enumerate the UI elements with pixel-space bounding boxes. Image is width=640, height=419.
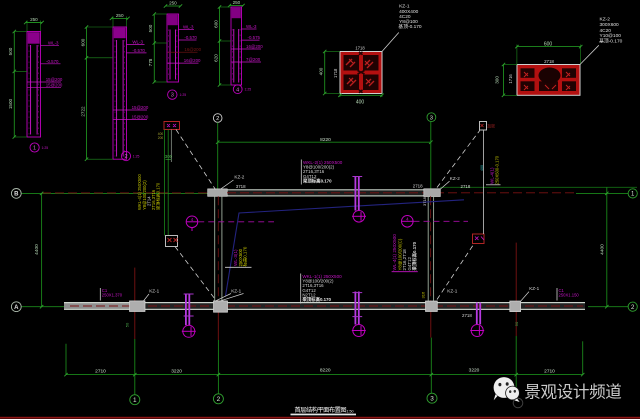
- svg-text:3: 3: [430, 115, 433, 121]
- svg-text:梁顶标高0.170: 梁顶标高0.170: [302, 178, 332, 185]
- svg-text:加密: 加密: [487, 124, 495, 129]
- svg-text:1718: 1718: [355, 45, 365, 50]
- svg-text:500: 500: [8, 47, 13, 55]
- svg-text:-0.570: -0.570: [184, 35, 197, 40]
- svg-text:1:25: 1:25: [245, 88, 252, 92]
- svg-text:15@200: 15@200: [132, 105, 149, 110]
- svg-text:500: 500: [148, 24, 153, 32]
- svg-text:KZ-1: KZ-1: [399, 4, 410, 10]
- svg-text:250: 250: [30, 17, 38, 22]
- svg-text:600: 600: [80, 38, 85, 46]
- svg-text:15@200: 15@200: [46, 82, 63, 87]
- svg-text:50: 50: [514, 321, 519, 326]
- svg-text:KZ-2: KZ-2: [234, 175, 244, 180]
- svg-text:KZ-1: KZ-1: [529, 286, 539, 291]
- svg-text:16@200: 16@200: [184, 58, 201, 63]
- svg-text:8220: 8220: [320, 367, 331, 373]
- svg-text:400: 400: [356, 100, 365, 106]
- svg-text:16@200: 16@200: [246, 44, 263, 49]
- svg-text:WL-3: WL-3: [132, 40, 143, 45]
- svg-text:2718: 2718: [544, 59, 554, 64]
- svg-text:2: 2: [217, 396, 221, 403]
- svg-text:Y10@100: Y10@100: [600, 33, 622, 39]
- svg-text:2710: 2710: [544, 368, 555, 374]
- svg-text:400: 400: [480, 165, 484, 171]
- svg-text:1: 1: [33, 146, 36, 152]
- svg-text:3220: 3220: [171, 368, 182, 374]
- svg-text:1500: 1500: [8, 98, 13, 109]
- svg-text:600: 600: [544, 41, 553, 47]
- svg-text:-0.575: -0.575: [248, 35, 261, 40]
- svg-text:2718: 2718: [461, 184, 471, 189]
- svg-text:基顶-0.170: 基顶-0.170: [599, 37, 623, 44]
- svg-text:2: 2: [124, 154, 127, 160]
- svg-text:-0.570: -0.570: [132, 48, 145, 53]
- svg-text:WL-3: WL-3: [48, 40, 59, 45]
- svg-text:KZ-2: KZ-2: [450, 176, 460, 181]
- svg-text:1:25: 1:25: [133, 155, 140, 159]
- svg-text:1:25: 1:25: [180, 93, 187, 97]
- svg-text:1:25: 1:25: [42, 146, 49, 150]
- svg-text:2718: 2718: [413, 183, 423, 188]
- svg-text:4: 4: [236, 87, 239, 93]
- svg-text:400: 400: [319, 67, 324, 75]
- svg-text:首层结构平面布置图: 首层结构平面布置图: [295, 406, 347, 414]
- svg-text:梁顶标高0.170: 梁顶标高0.170: [411, 241, 418, 271]
- svg-text:景观设计频道: 景观设计频道: [524, 382, 621, 401]
- svg-text:250X1.370: 250X1.370: [102, 293, 123, 298]
- svg-text:15@200: 15@200: [132, 115, 149, 120]
- svg-text:1:50: 1:50: [347, 410, 354, 414]
- svg-text:B: B: [14, 192, 19, 198]
- svg-text:300: 300: [165, 154, 173, 159]
- svg-text:KZ-1: KZ-1: [447, 288, 457, 293]
- svg-text:200: 200: [158, 136, 164, 140]
- svg-text:WL-3: WL-3: [246, 24, 257, 29]
- svg-text:KZ-1: KZ-1: [149, 289, 159, 294]
- svg-text:7@200: 7@200: [246, 57, 261, 62]
- svg-text:8220: 8220: [320, 137, 331, 143]
- svg-text:250: 250: [169, 1, 177, 6]
- svg-text:3220: 3220: [469, 367, 480, 373]
- svg-text:778: 778: [148, 58, 153, 66]
- svg-text:梁顶标高0.170: 梁顶标高0.170: [301, 296, 331, 303]
- svg-text:316: 316: [420, 291, 425, 298]
- svg-text:3: 3: [430, 396, 434, 403]
- svg-text:4C20: 4C20: [600, 28, 612, 34]
- svg-text:250: 250: [233, 0, 241, 5]
- svg-text:WL-3: WL-3: [183, 24, 194, 29]
- svg-text:300X600: 300X600: [600, 22, 620, 28]
- svg-text:2722: 2722: [80, 106, 85, 117]
- svg-text:1: 1: [133, 397, 137, 404]
- svg-text:15@200: 15@200: [46, 77, 63, 82]
- svg-text:620: 620: [213, 54, 218, 62]
- svg-text:2718: 2718: [462, 313, 472, 318]
- svg-text:50: 50: [125, 322, 130, 327]
- svg-text:250X500-0.170: 250X500-0.170: [494, 155, 499, 184]
- svg-text:3718: 3718: [422, 196, 427, 206]
- svg-text:3: 3: [171, 93, 174, 99]
- svg-text:基顶-0.170: 基顶-0.170: [398, 23, 422, 30]
- svg-text:KZ-2: KZ-2: [600, 17, 611, 23]
- svg-text:4400: 4400: [34, 244, 40, 255]
- svg-text:3718: 3718: [236, 184, 246, 189]
- svg-text:250X1.150: 250X1.150: [559, 292, 580, 297]
- svg-text:标高0.170: 标高0.170: [241, 246, 248, 266]
- svg-text:KZ-1: KZ-1: [231, 289, 241, 294]
- svg-text:A: A: [14, 305, 19, 311]
- svg-text:300: 300: [495, 76, 500, 84]
- svg-text:250: 250: [116, 13, 124, 18]
- svg-text:1716: 1716: [508, 74, 513, 84]
- svg-text:-0.570: -0.570: [46, 59, 59, 64]
- svg-text:600: 600: [213, 20, 218, 28]
- svg-text:2: 2: [216, 116, 219, 122]
- svg-text:4400: 4400: [599, 244, 605, 255]
- svg-text:梁顶标高0.170: 梁顶标高0.170: [155, 182, 162, 210]
- svg-text:1718: 1718: [333, 68, 338, 78]
- svg-text:16@200: 16@200: [184, 47, 201, 52]
- svg-text:2710: 2710: [95, 368, 106, 374]
